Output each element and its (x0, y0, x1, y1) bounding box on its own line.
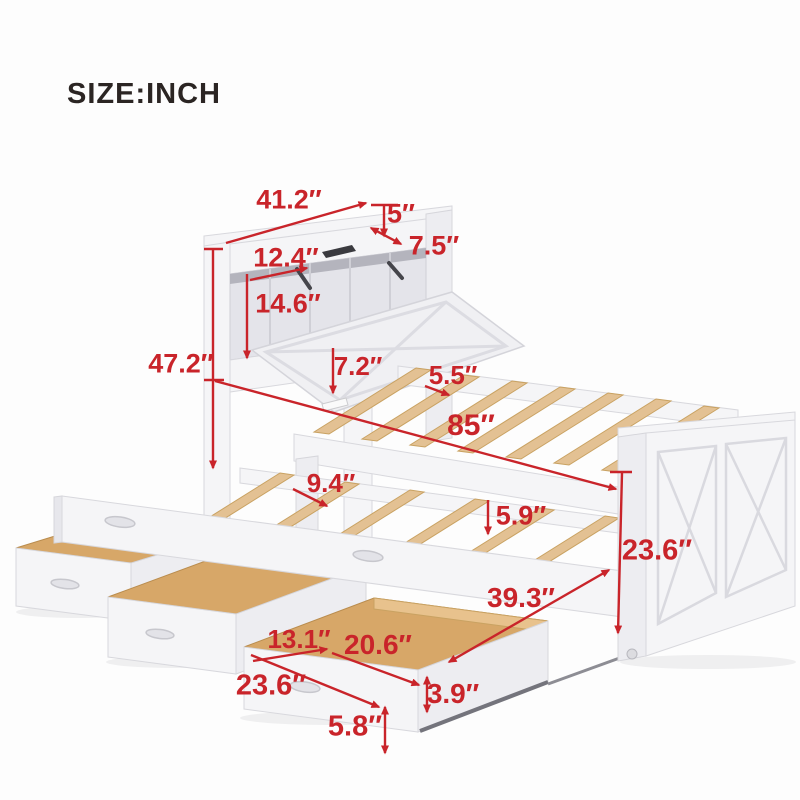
footboard (618, 412, 795, 661)
bed-diagram-illustration (0, 0, 800, 800)
dimension-diagram-page: SIZE:INCH (0, 0, 800, 800)
caster-wheel (627, 649, 637, 659)
